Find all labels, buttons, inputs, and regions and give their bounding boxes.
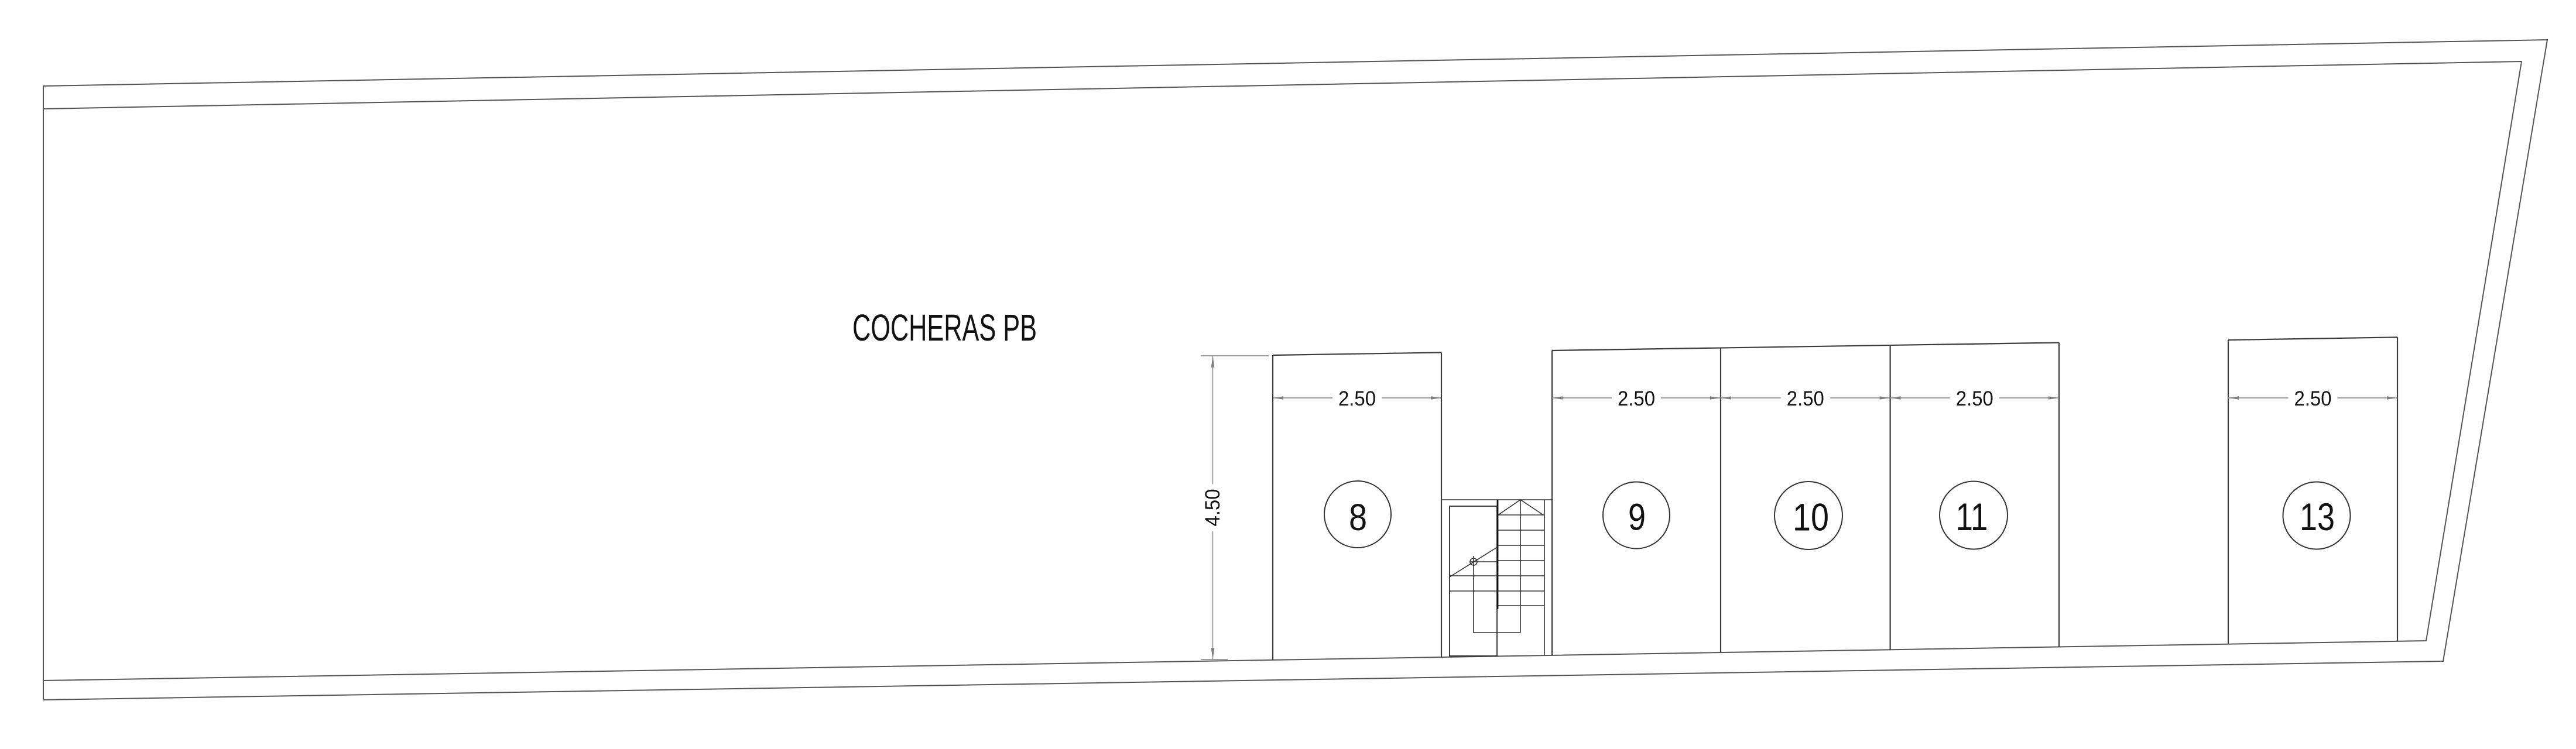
- svg-text:2.50: 2.50: [1618, 387, 1655, 410]
- svg-text:8: 8: [1349, 496, 1367, 538]
- svg-text:2.50: 2.50: [2294, 387, 2332, 410]
- svg-text:4.50: 4.50: [1201, 489, 1224, 527]
- svg-text:9: 9: [1628, 496, 1646, 538]
- svg-text:13: 13: [2300, 495, 2335, 538]
- svg-text:10: 10: [1793, 496, 1829, 539]
- svg-text:2.50: 2.50: [1338, 387, 1376, 410]
- svg-text:2.50: 2.50: [1956, 387, 1993, 410]
- svg-text:COCHERAS PB: COCHERAS PB: [852, 307, 1037, 349]
- svg-text:2.50: 2.50: [1787, 387, 1824, 410]
- svg-text:11: 11: [1956, 495, 1988, 538]
